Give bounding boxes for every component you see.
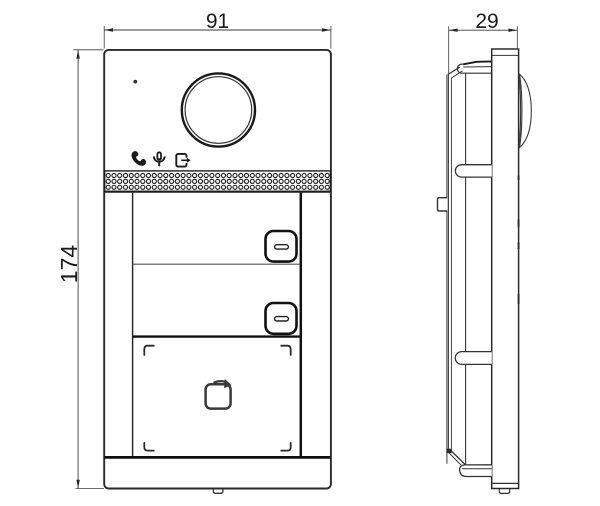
svg-text:29: 29 — [475, 10, 498, 33]
svg-text:91: 91 — [206, 10, 229, 33]
svg-text:174: 174 — [56, 245, 82, 284]
